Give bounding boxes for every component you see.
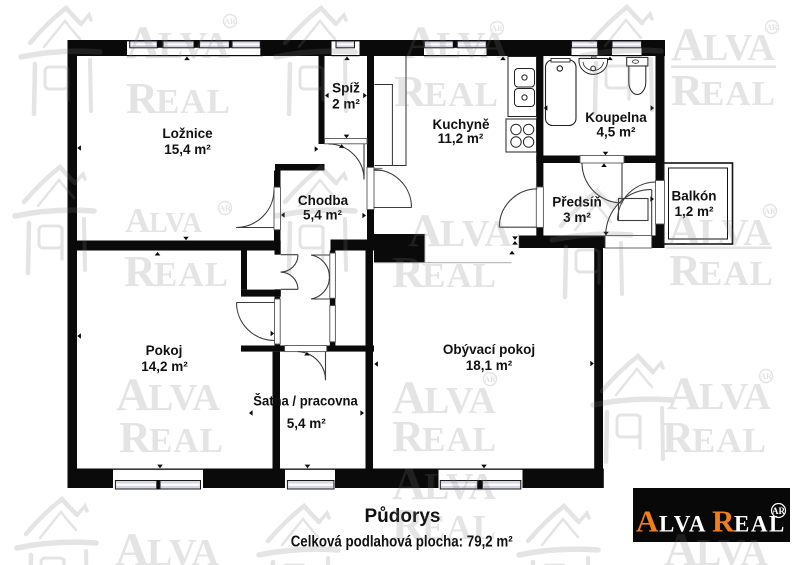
svg-text:Balkón: Balkón: [671, 189, 716, 204]
svg-text:Pokoj: Pokoj: [146, 343, 183, 358]
svg-text:5,4 m²: 5,4 m²: [287, 416, 327, 431]
svg-text:15,4 m²: 15,4 m²: [164, 142, 211, 157]
svg-text:11,2 m²: 11,2 m²: [438, 131, 484, 146]
svg-text:Šatna / pracovna: Šatna / pracovna: [253, 394, 358, 409]
svg-text:Kuchyně: Kuchyně: [432, 117, 490, 132]
svg-text:AR: AR: [772, 506, 785, 516]
svg-text:A: A: [636, 504, 659, 539]
svg-text:Obývací pokoj: Obývací pokoj: [443, 342, 535, 357]
svg-text:4,5 m²: 4,5 m²: [596, 125, 636, 140]
svg-text:Chodba: Chodba: [298, 193, 349, 208]
svg-text:Ložnice: Ložnice: [162, 126, 213, 141]
svg-text:18,1 m²: 18,1 m²: [466, 358, 513, 373]
